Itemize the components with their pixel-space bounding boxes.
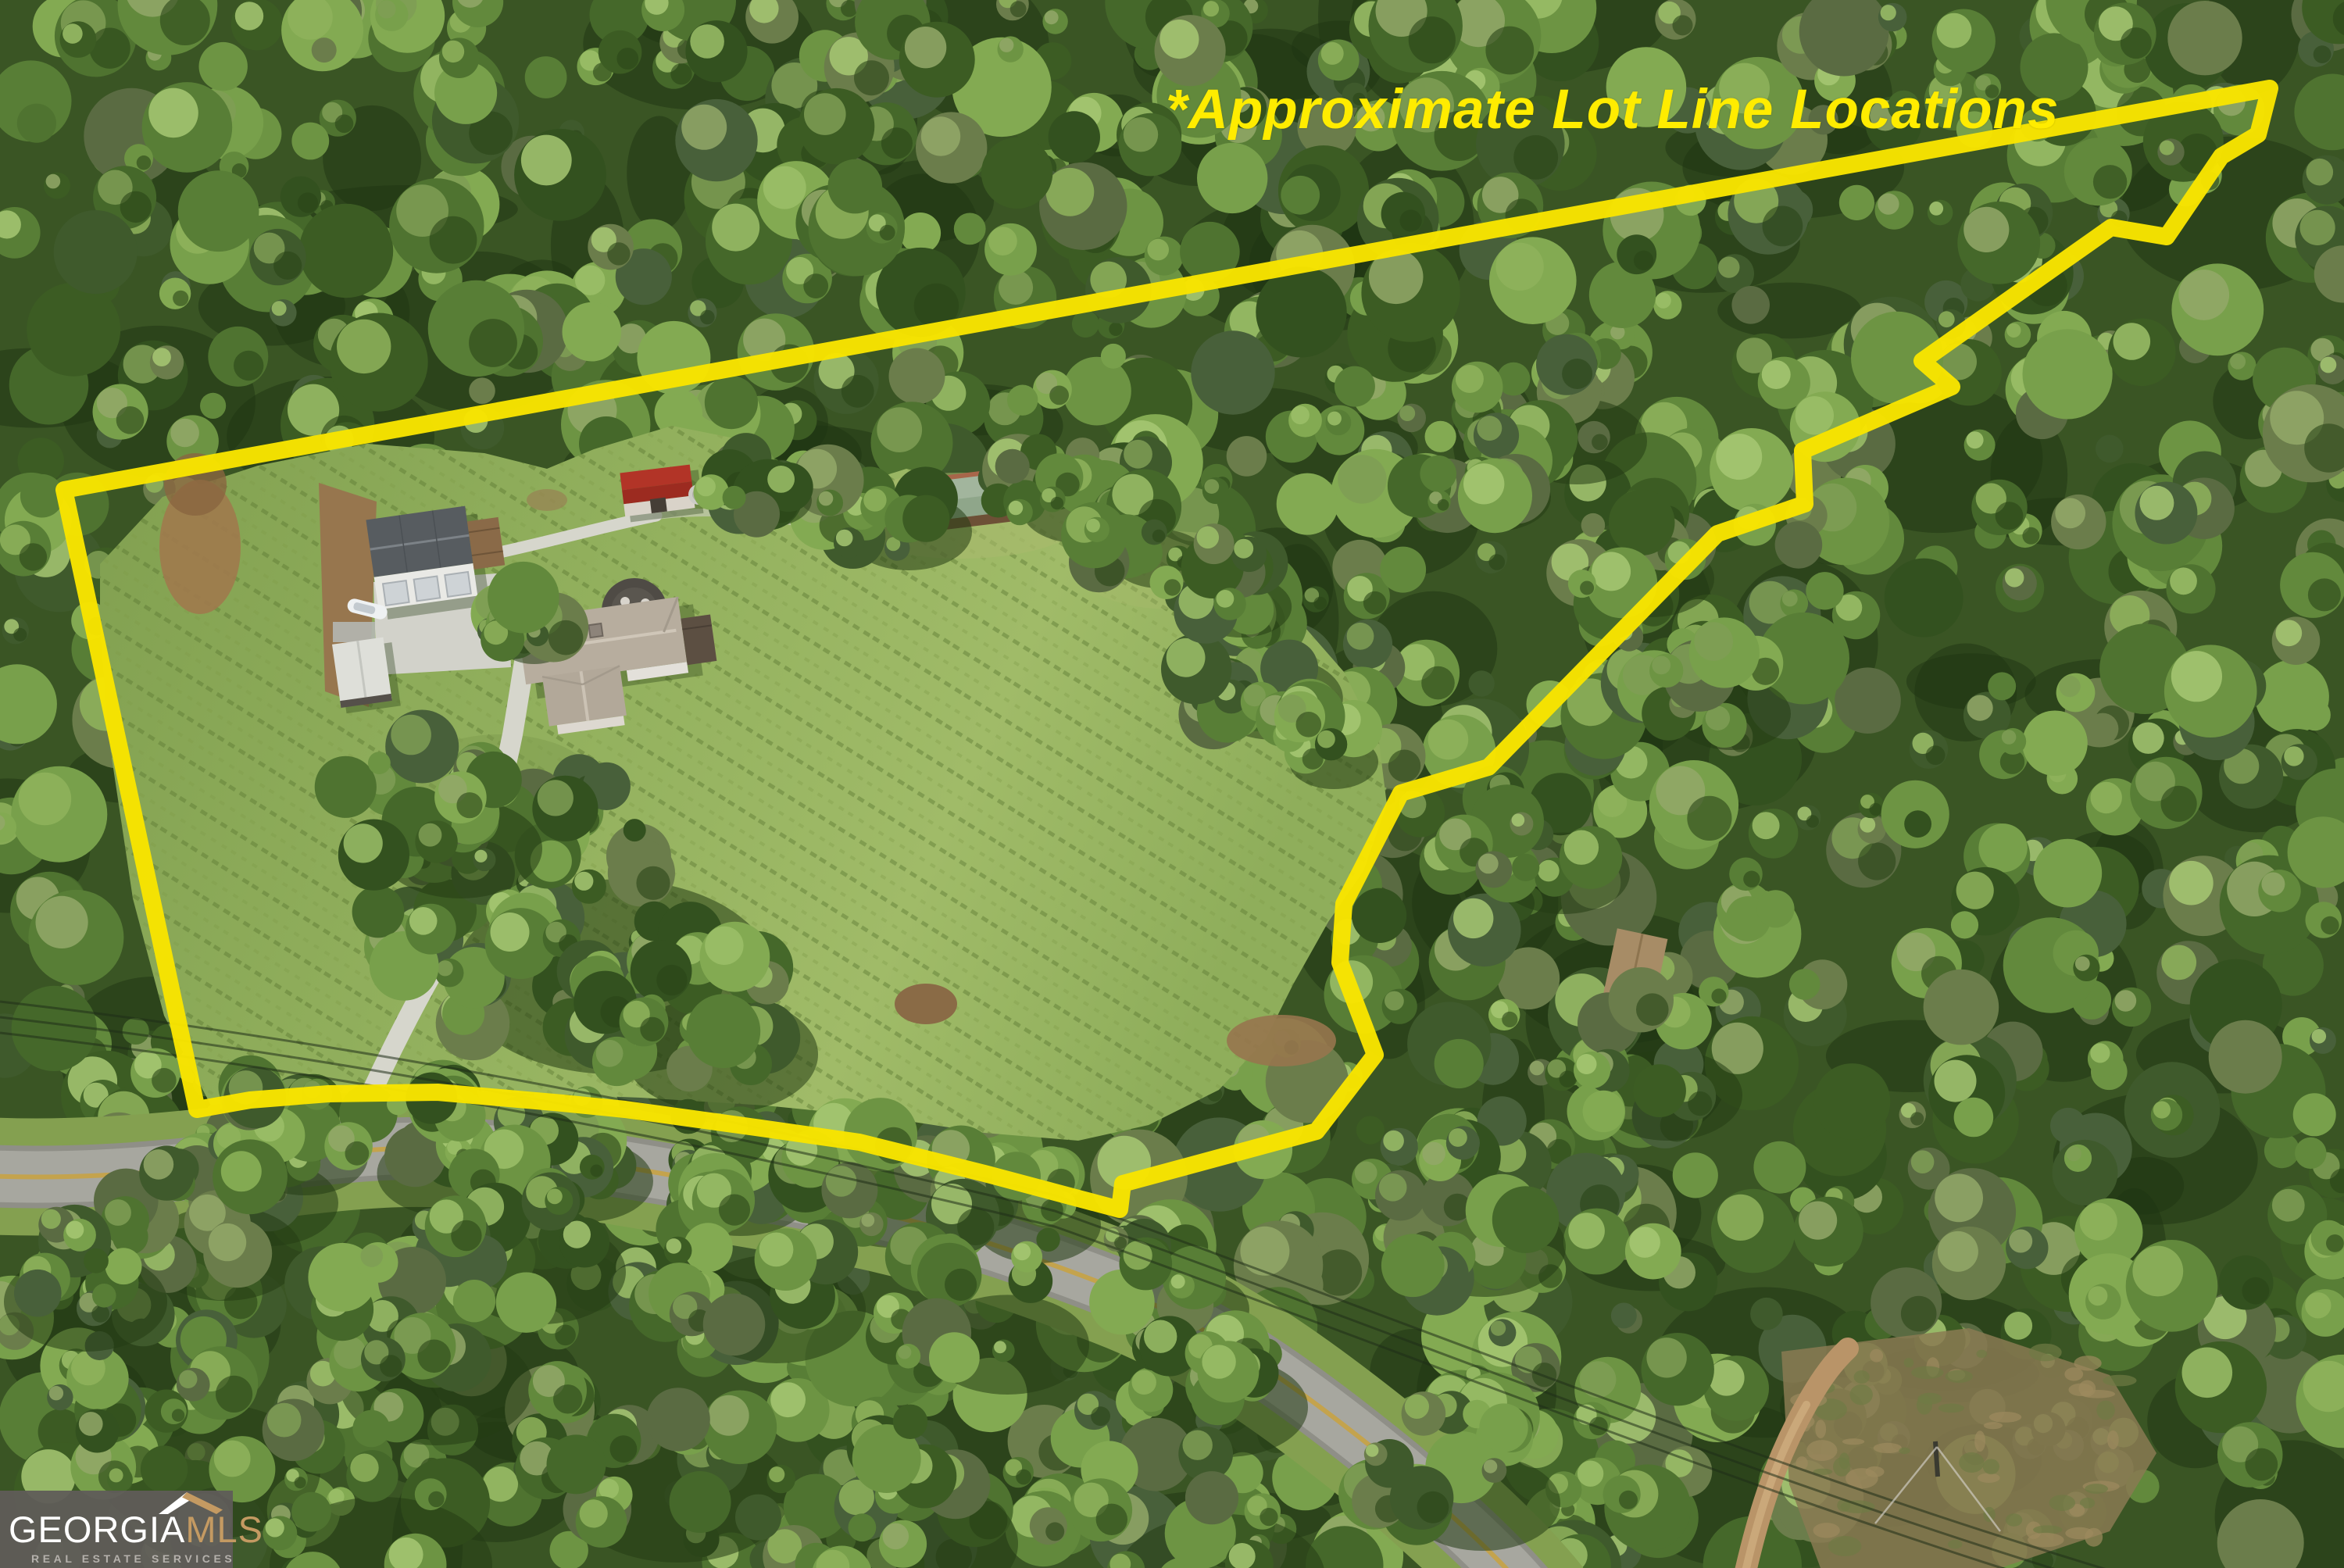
logo-tagline: REAL ESTATE SERVICES bbox=[31, 1552, 235, 1565]
logo-wordmark: GEORGIAMLS bbox=[9, 1511, 263, 1548]
aerial-photo: *Approximate Lot Line Locations GEORGIAM… bbox=[0, 0, 2344, 1568]
lot-line-annotation-label: *Approximate Lot Line Locations bbox=[1166, 78, 2059, 141]
aerial-scene bbox=[0, 0, 2344, 1568]
logo-text-mls: MLS bbox=[185, 1509, 263, 1550]
logo-text-georgia: GEORGIA bbox=[9, 1509, 185, 1550]
georgia-mls-logo: GEORGIAMLS REAL ESTATE SERVICES bbox=[0, 1491, 233, 1568]
